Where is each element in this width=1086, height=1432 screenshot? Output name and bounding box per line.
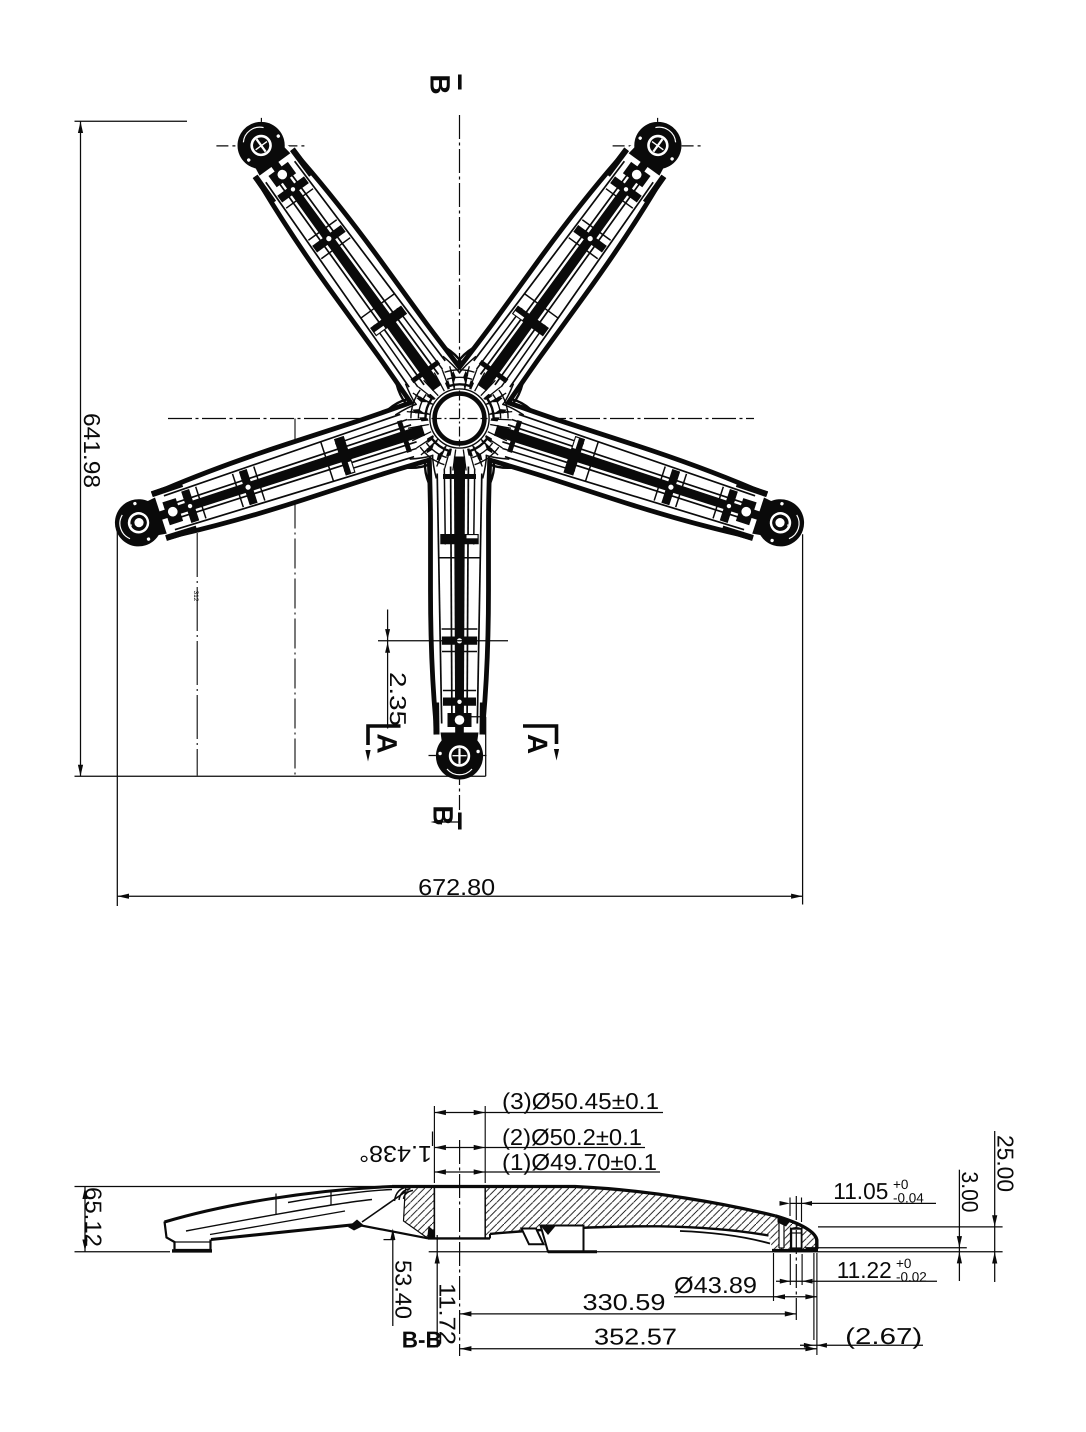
- svg-text:641.98: 641.98: [79, 413, 105, 488]
- svg-text:Ø43.89: Ø43.89: [674, 1272, 757, 1298]
- svg-text:312: 312: [192, 591, 199, 602]
- svg-text:25.00: 25.00: [993, 1135, 1019, 1192]
- svg-text:11.05: 11.05: [833, 1178, 888, 1204]
- svg-text:(2)Ø50.2±0.1: (2)Ø50.2±0.1: [502, 1124, 642, 1150]
- svg-text:672.80: 672.80: [418, 874, 495, 900]
- svg-text:(3)Ø50.45±0.1: (3)Ø50.45±0.1: [502, 1088, 659, 1114]
- svg-text:330.59: 330.59: [583, 1289, 666, 1315]
- svg-text:(2.67): (2.67): [845, 1323, 922, 1349]
- svg-text:53.40: 53.40: [391, 1260, 417, 1319]
- svg-text:1.438°: 1.438°: [359, 1141, 432, 1167]
- svg-text:A: A: [372, 733, 403, 753]
- svg-text:352.57: 352.57: [594, 1324, 677, 1350]
- svg-text:65.12: 65.12: [81, 1187, 107, 1247]
- svg-text:2.35: 2.35: [385, 672, 411, 726]
- svg-text:B-B: B-B: [402, 1327, 442, 1353]
- svg-text:(1)Ø49.70±0.1: (1)Ø49.70±0.1: [502, 1149, 657, 1175]
- svg-text:11.22: 11.22: [837, 1257, 892, 1283]
- svg-text:3.00: 3.00: [957, 1172, 983, 1213]
- svg-text:-0.02: -0.02: [896, 1270, 927, 1285]
- svg-text:B: B: [425, 74, 456, 94]
- svg-text:-0.04: -0.04: [893, 1191, 924, 1206]
- svg-text:A: A: [522, 734, 553, 754]
